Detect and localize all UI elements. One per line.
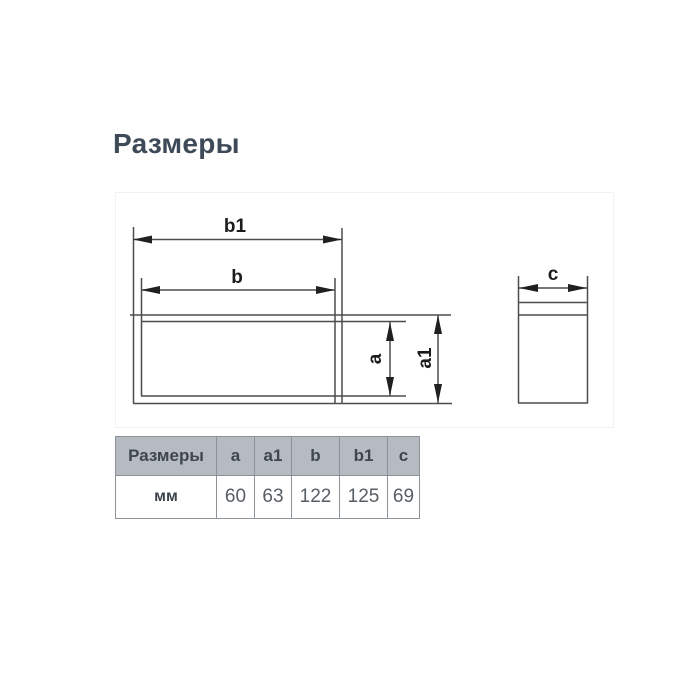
dim-label-b: b (231, 267, 243, 288)
table-header-c: c (388, 437, 420, 476)
dimension-c: c (519, 264, 587, 292)
end-view (518, 276, 588, 403)
dim-label-a: a (365, 353, 386, 364)
dimension-a1: a1 (415, 315, 442, 403)
table-header-name: Размеры (116, 437, 217, 476)
dimensions-section: Размеры b1 b (0, 0, 700, 700)
b1-right-arrow-icon (323, 236, 342, 244)
table-header-a1: a1 (255, 437, 292, 476)
dimension-b1: b1 (133, 216, 342, 244)
b-left-arrow-icon (141, 286, 160, 294)
table-header-b: b (292, 437, 340, 476)
a-down-arrow-icon (386, 377, 394, 396)
dim-label-a1: a1 (415, 347, 436, 369)
table-cell-b1: 125 (340, 476, 388, 519)
b1-left-arrow-icon (133, 236, 152, 244)
table-cell-c: 69 (388, 476, 420, 519)
c-right-arrow-icon (568, 284, 587, 292)
dim-label-c: c (548, 264, 559, 285)
b-right-arrow-icon (316, 286, 335, 294)
table-cell-a1: 63 (255, 476, 292, 519)
dimension-b: b (141, 267, 335, 294)
table-cell-a: 60 (217, 476, 255, 519)
dim-label-b1: b1 (224, 216, 247, 237)
a1-up-arrow-icon (434, 315, 442, 334)
dimension-a: a (365, 322, 394, 396)
table-cell-unit: мм (116, 476, 217, 519)
side-view (130, 227, 452, 404)
table-cell-b: 122 (292, 476, 340, 519)
table-header-b1: b1 (340, 437, 388, 476)
table-row: мм 60 63 122 125 69 (116, 476, 420, 519)
dimensions-table: Размеры a a1 b b1 c мм 60 63 122 125 69 (115, 436, 420, 519)
c-left-arrow-icon (519, 284, 538, 292)
table-header-a: a (217, 437, 255, 476)
a-up-arrow-icon (386, 322, 394, 341)
table-header-row: Размеры a a1 b b1 c (116, 437, 420, 476)
a1-down-arrow-icon (434, 384, 442, 403)
dimension-diagram: b1 b a a1 (0, 0, 700, 700)
